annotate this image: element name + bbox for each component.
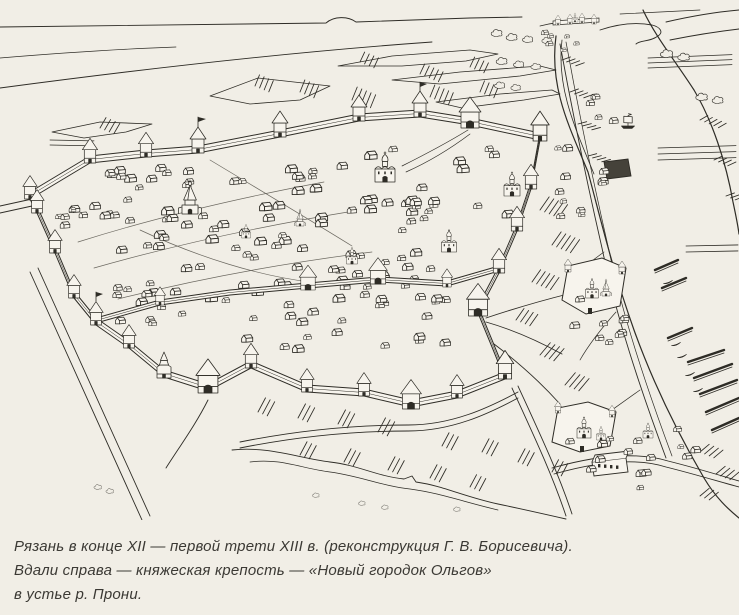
house-icon xyxy=(170,288,180,295)
house-icon xyxy=(285,312,296,319)
house-icon xyxy=(541,30,548,35)
house-icon xyxy=(308,173,316,178)
house-icon xyxy=(595,115,602,120)
house-icon xyxy=(292,186,304,194)
house-icon xyxy=(422,313,432,320)
house-icon xyxy=(561,48,567,52)
house-icon xyxy=(183,167,193,174)
house-icon xyxy=(135,185,143,190)
house-icon xyxy=(125,174,137,182)
house-icon xyxy=(596,335,604,341)
house-icon xyxy=(115,317,125,324)
house-icon xyxy=(389,146,398,152)
house-icon xyxy=(250,316,257,321)
house-icon xyxy=(674,426,682,431)
house-icon xyxy=(621,315,629,320)
house-icon xyxy=(255,237,267,245)
house-icon xyxy=(646,454,655,460)
caption-line-1: Рязань в конце XII — первой трети XIII в… xyxy=(14,535,727,559)
house-icon xyxy=(615,331,624,337)
house-icon xyxy=(634,438,643,444)
house-icon xyxy=(222,298,230,303)
house-icon xyxy=(146,281,154,286)
house-icon xyxy=(196,263,205,269)
house-icon xyxy=(285,165,297,173)
house-icon xyxy=(113,284,122,290)
house-icon xyxy=(149,320,157,325)
house-icon xyxy=(147,175,157,182)
house-icon xyxy=(546,41,553,46)
house-icon xyxy=(292,172,303,179)
house-icon xyxy=(360,196,371,204)
house-icon xyxy=(347,207,356,213)
house-icon xyxy=(61,214,69,220)
house-icon xyxy=(587,466,597,472)
house-icon xyxy=(398,227,406,232)
house-icon xyxy=(410,248,421,256)
house-icon xyxy=(332,329,342,336)
house-icon xyxy=(555,146,561,150)
house-icon xyxy=(360,291,369,297)
house-icon xyxy=(238,178,246,183)
house-icon xyxy=(363,284,371,289)
house-icon xyxy=(273,201,285,209)
house-icon xyxy=(426,266,435,272)
house-icon xyxy=(163,170,171,176)
house-icon xyxy=(683,453,692,459)
scanned-book-page: Рязань в конце XII — первой трети XIII в… xyxy=(0,0,739,615)
house-icon xyxy=(624,448,633,454)
house-icon xyxy=(578,212,585,217)
house-icon xyxy=(599,180,606,185)
house-icon xyxy=(376,295,387,302)
house-icon xyxy=(69,207,76,212)
house-icon xyxy=(402,263,413,270)
house-icon xyxy=(691,446,701,453)
house-icon xyxy=(310,184,321,192)
house-icon xyxy=(561,173,571,180)
house-icon xyxy=(432,295,443,302)
house-icon xyxy=(606,436,613,441)
house-icon xyxy=(414,333,425,340)
house-icon xyxy=(79,212,88,218)
house-icon xyxy=(232,245,240,251)
house-icon xyxy=(279,232,287,237)
house-icon xyxy=(410,198,421,206)
house-icon xyxy=(178,311,186,316)
house-icon xyxy=(454,157,466,165)
house-icon xyxy=(489,151,499,158)
house-icon xyxy=(124,287,132,292)
house-icon xyxy=(570,322,580,329)
house-icon xyxy=(563,144,573,151)
house-icon xyxy=(592,94,600,99)
house-icon xyxy=(329,266,339,273)
house-icon xyxy=(272,242,281,248)
house-icon xyxy=(333,294,345,302)
house-icon xyxy=(440,339,450,346)
figure-caption: Рязань в конце XII — первой трети XIII в… xyxy=(0,520,739,607)
house-icon xyxy=(199,213,208,219)
house-icon xyxy=(117,173,126,179)
house-icon xyxy=(678,444,684,448)
house-icon xyxy=(560,199,567,204)
house-icon xyxy=(153,242,164,249)
figure-illustration: Рязань в конце XII — первой трети XIII в… xyxy=(0,0,739,607)
house-icon xyxy=(365,151,377,159)
house-icon xyxy=(642,469,651,475)
house-icon xyxy=(605,339,613,344)
house-icon xyxy=(557,213,565,219)
house-icon xyxy=(555,188,564,194)
house-icon xyxy=(382,199,393,206)
house-icon xyxy=(304,334,312,339)
house-icon xyxy=(337,162,347,169)
house-icon xyxy=(308,308,319,315)
house-icon xyxy=(110,212,119,218)
paper-background xyxy=(0,0,739,520)
house-icon xyxy=(60,222,70,229)
house-icon xyxy=(417,184,427,191)
house-icon xyxy=(316,219,328,227)
house-icon xyxy=(598,440,608,447)
house-icon xyxy=(457,164,469,172)
house-icon xyxy=(218,220,229,228)
house-icon xyxy=(415,293,425,300)
house-icon xyxy=(238,281,249,288)
ryazan-reconstruction-drawing xyxy=(0,0,739,520)
house-icon xyxy=(284,301,294,308)
house-icon xyxy=(566,438,575,444)
house-icon xyxy=(181,264,192,271)
house-icon xyxy=(162,206,174,214)
house-icon xyxy=(474,203,482,209)
house-icon xyxy=(206,235,218,243)
house-icon xyxy=(609,117,618,123)
house-icon xyxy=(576,296,585,302)
house-icon xyxy=(105,169,115,176)
house-icon xyxy=(595,456,605,463)
house-icon xyxy=(574,41,580,45)
house-icon xyxy=(100,212,111,219)
house-icon xyxy=(292,264,302,271)
house-icon xyxy=(420,215,428,220)
house-icon xyxy=(143,242,151,248)
house-icon xyxy=(126,217,135,223)
house-icon xyxy=(407,218,416,224)
house-icon xyxy=(160,234,169,240)
house-icon xyxy=(297,318,308,326)
house-icon xyxy=(263,214,274,222)
house-icon xyxy=(181,221,192,228)
house-icon xyxy=(338,318,346,323)
house-icon xyxy=(243,251,251,257)
house-icon xyxy=(242,335,253,343)
caption-line-2: Вдали справа — княжеская крепость — «Нов… xyxy=(14,559,727,583)
house-icon xyxy=(586,100,594,106)
house-icon xyxy=(167,214,178,221)
house-icon xyxy=(124,197,132,202)
house-icon xyxy=(260,202,272,210)
house-icon xyxy=(365,205,377,213)
house-icon xyxy=(637,485,644,490)
house-icon xyxy=(599,321,607,326)
house-icon xyxy=(397,255,405,261)
house-icon xyxy=(485,146,493,152)
house-icon xyxy=(298,245,308,252)
house-icon xyxy=(309,168,317,174)
house-icon xyxy=(116,246,127,253)
caption-line-3: в устье р. Прони. xyxy=(14,583,727,607)
house-icon xyxy=(280,343,289,349)
house-icon xyxy=(352,270,362,277)
house-icon xyxy=(90,202,101,209)
house-icon xyxy=(210,226,219,232)
house-icon xyxy=(425,209,433,214)
house-icon xyxy=(142,290,152,297)
house-icon xyxy=(293,345,305,353)
house-icon xyxy=(113,292,122,298)
house-icon xyxy=(564,34,569,38)
house-icon xyxy=(429,197,440,205)
house-icon xyxy=(600,168,609,174)
house-icon xyxy=(381,342,389,348)
